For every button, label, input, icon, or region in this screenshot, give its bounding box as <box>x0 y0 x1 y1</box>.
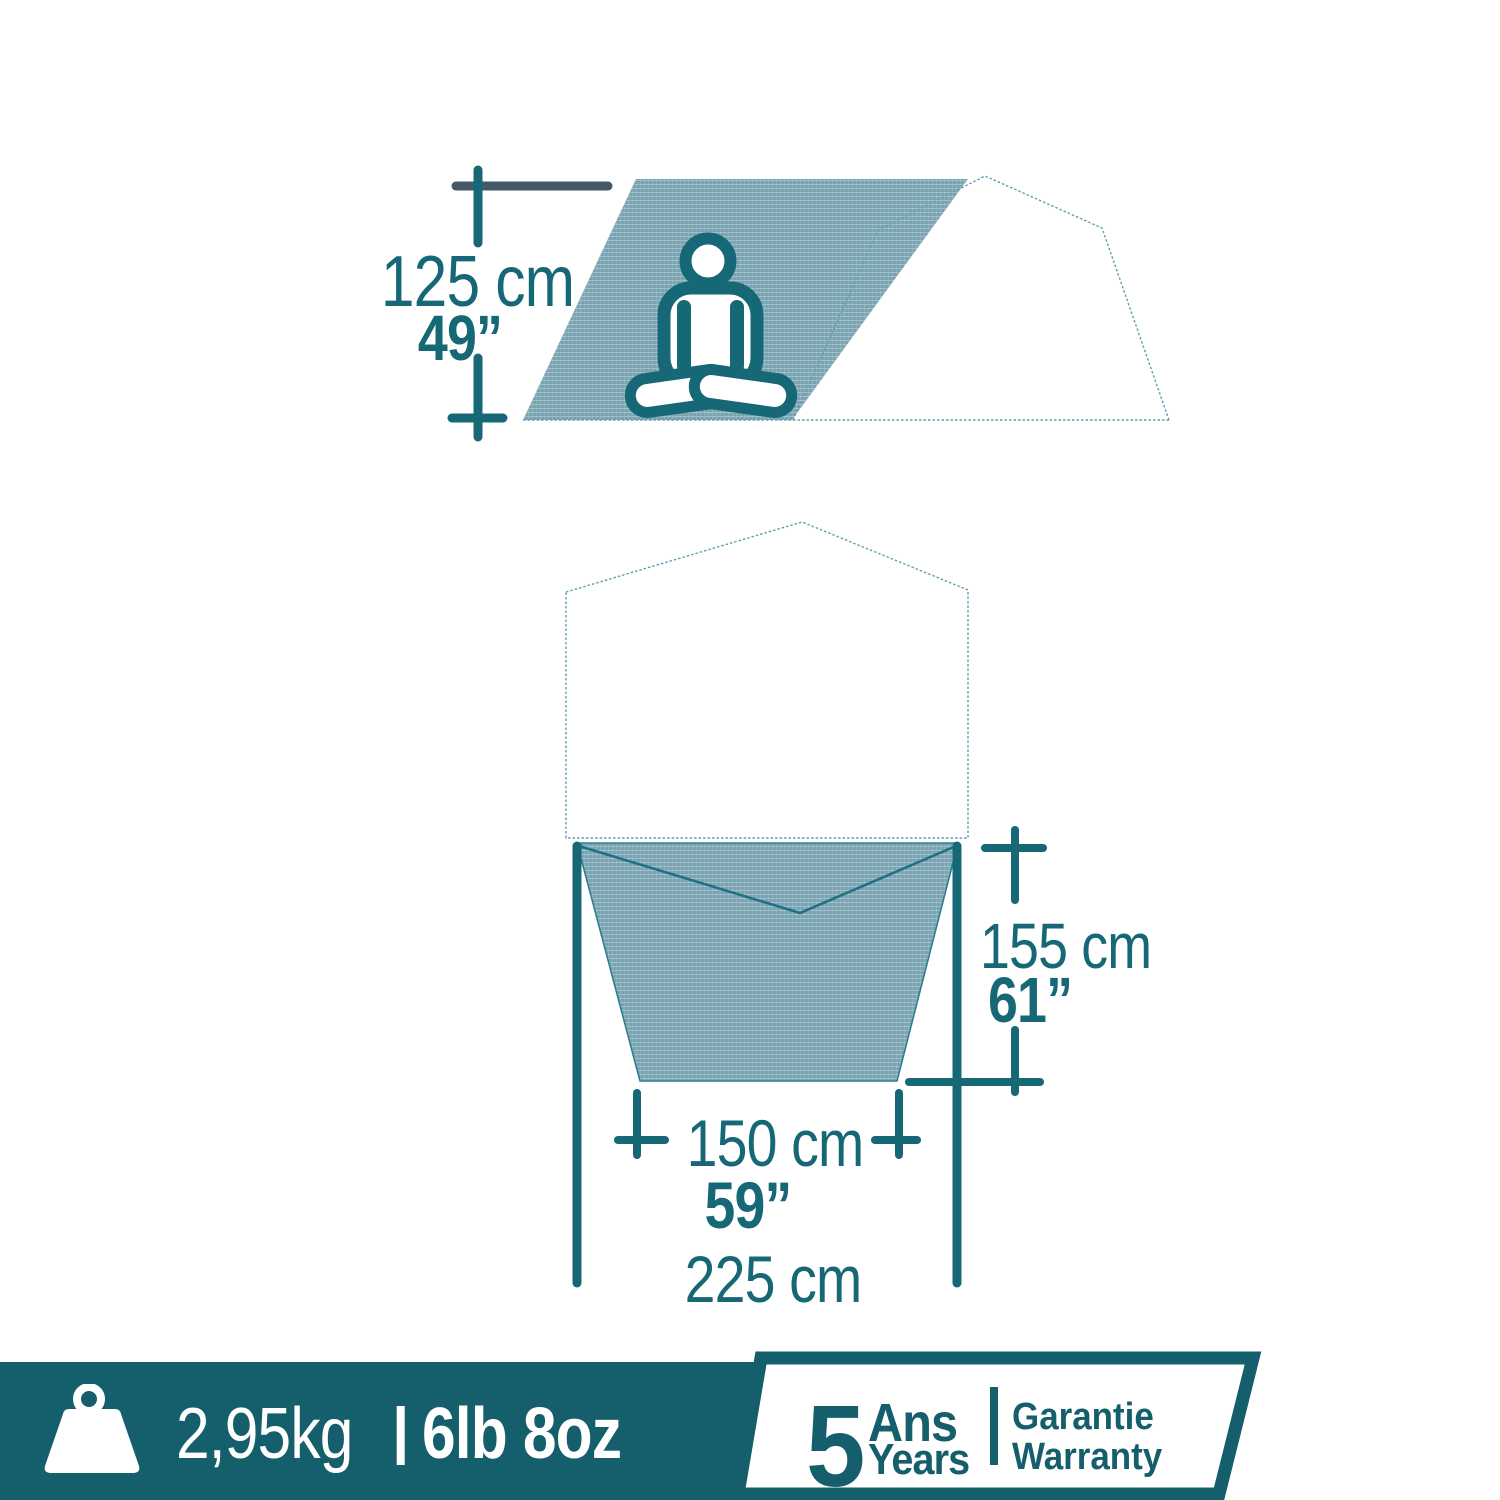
warranty-label-en: Warranty <box>1012 1438 1162 1476</box>
inner-width-in-label: 59” <box>640 1172 856 1238</box>
groundsheet-outline <box>577 843 958 1081</box>
weight-separator: | <box>392 1400 409 1462</box>
warranty-unit-en: Years <box>868 1438 969 1482</box>
weight-imperial-label: 6lb 8oz <box>422 1398 659 1470</box>
tent-top-outline <box>566 522 968 838</box>
warranty-label-fr: Garantie <box>1012 1398 1154 1436</box>
weight-imperial-text: 6lb 8oz <box>422 1398 621 1470</box>
inner-width-cm-text: 150 cm <box>678 1110 871 1176</box>
door-flap-line <box>579 846 956 913</box>
depth-in-label: 61” <box>988 968 1088 1032</box>
warranty-years-number: 5 <box>806 1388 863 1500</box>
weight-icon <box>44 1384 144 1480</box>
outer-width-cm-text: 225 cm <box>661 1246 884 1312</box>
height-in-label: 49” <box>330 306 590 370</box>
warranty-badge-divider <box>990 1387 998 1465</box>
tent-dimensions-infographic: 125 cm 49” 155 cm 61” 150 cm 59” 225 cm … <box>0 0 1500 1500</box>
outer-width-cm-label: 225 cm <box>640 1246 906 1312</box>
depth-in-text: 61” <box>988 968 1072 1032</box>
height-in-text: 49” <box>351 306 569 370</box>
weight-metric-text: 2,95kg <box>176 1398 353 1470</box>
inner-width-cm-label: 150 cm <box>660 1110 890 1176</box>
person-meditating-icon <box>628 239 794 415</box>
weight-metric-label: 2,95kg <box>176 1398 386 1470</box>
inner-width-in-text: 59” <box>657 1172 838 1238</box>
